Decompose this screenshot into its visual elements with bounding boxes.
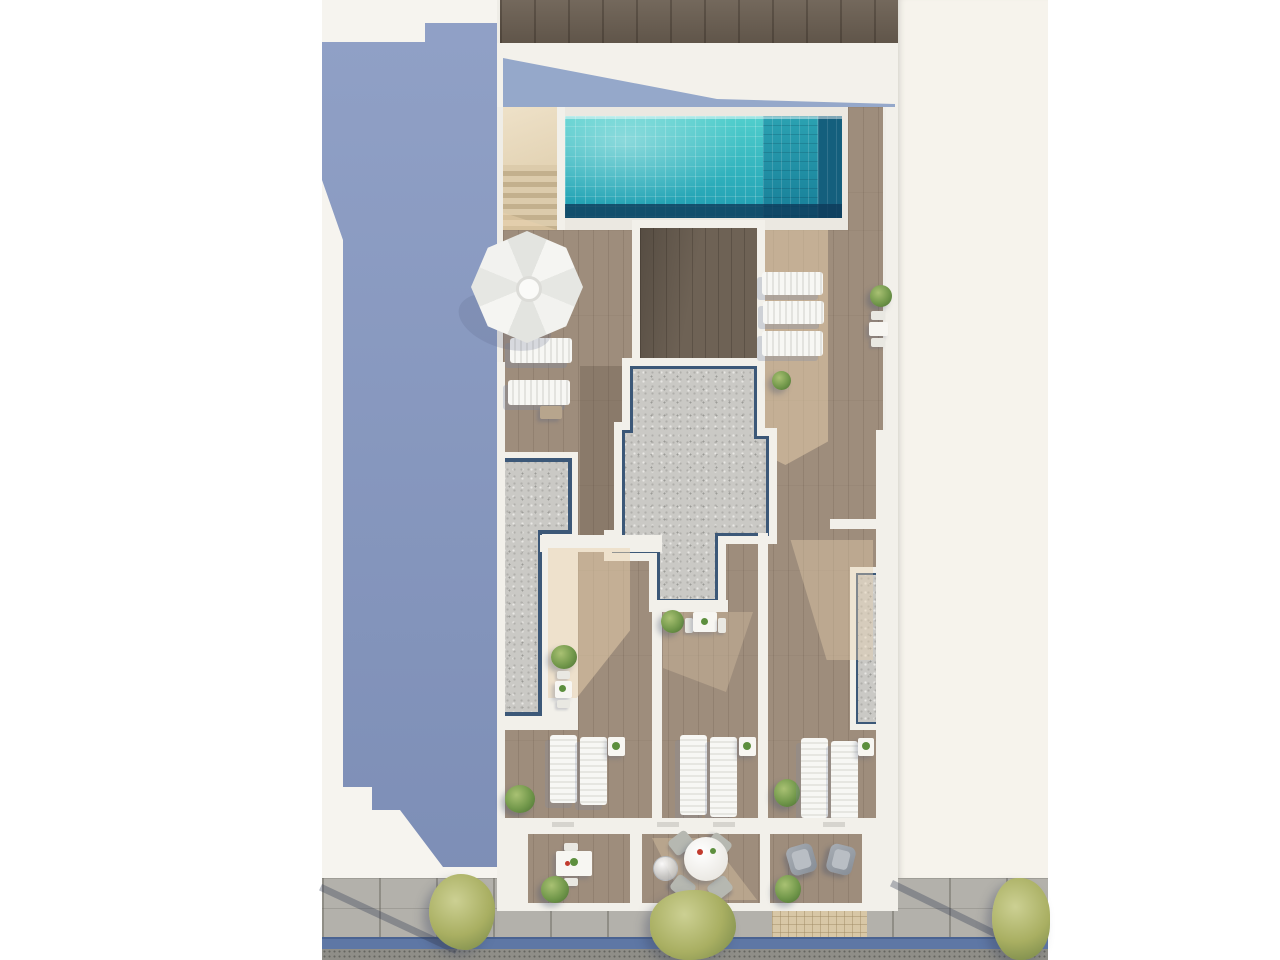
left-building-shading [322, 0, 498, 878]
sun-lounger [680, 735, 707, 815]
stair-pool-divider-wall [557, 107, 565, 230]
potted-plant [661, 610, 684, 633]
railing-mark [713, 822, 735, 827]
sun-lounger [508, 380, 570, 405]
sun-lounger [580, 737, 607, 805]
potted-plant [774, 779, 800, 807]
railing-mark [552, 822, 574, 827]
glass-sphere-decor [653, 856, 678, 881]
driveway-tan-pavers [772, 908, 867, 937]
pool-shadow-edge-right [818, 116, 842, 218]
potted-plant [505, 785, 535, 813]
potted-plant [775, 875, 801, 903]
left-adjacent-building [322, 0, 498, 878]
table-plant-dot [612, 742, 620, 750]
pool-side-deck [848, 107, 883, 230]
potted-plant [870, 285, 892, 307]
balcony-right-corner-wall [862, 818, 898, 911]
swimming-pool [565, 116, 842, 218]
side-table [540, 406, 562, 419]
stair-core-dark-floor [640, 228, 757, 362]
potted-plant [772, 371, 791, 390]
balcony-left-wall [503, 834, 528, 903]
balcony-divider-b-c [760, 834, 770, 903]
railing-mark [657, 822, 679, 827]
bistro-chair [871, 311, 885, 320]
right-parapet-lower [876, 430, 898, 820]
bistro-table [869, 322, 888, 336]
street-tree [992, 878, 1050, 960]
table-plant-dot [701, 618, 708, 625]
pool-waterline-highlight [565, 116, 842, 119]
sun-lounger [710, 737, 737, 817]
dining-chair [564, 843, 578, 851]
round-dining-table [684, 837, 728, 881]
bistro-chair [557, 700, 570, 708]
sun-lounger [550, 735, 577, 803]
railing-mark [823, 822, 845, 827]
stair-landing [503, 107, 557, 165]
table-item-dot [697, 849, 703, 855]
table-plant-dot [862, 742, 870, 750]
right-adjacent-plot [898, 0, 1048, 878]
table-plant-dot [743, 742, 751, 750]
bistro-chair [557, 671, 570, 679]
street-tree [429, 874, 495, 950]
sun-lounger [831, 741, 858, 820]
bistro-chair [718, 618, 726, 633]
armchair-seat [831, 848, 851, 870]
wall-room2-room3 [758, 533, 768, 822]
balcony-divider-a-b [630, 834, 642, 903]
sun-lounger [762, 272, 823, 295]
pool-shadow-edge-bottom [565, 204, 842, 218]
sun-lounger [762, 331, 823, 356]
parasol-hub [516, 276, 542, 302]
bistro-chair [871, 338, 885, 347]
main-rooftop [497, 0, 898, 911]
left-building-white-corner [322, 0, 425, 42]
table-item-dot [710, 848, 716, 854]
pool-water [565, 116, 763, 218]
sun-lounger [801, 738, 828, 818]
left-building-white-sliver [425, 0, 498, 23]
sun-lounger [763, 301, 824, 324]
wall-room1-room2 [652, 610, 662, 822]
table-plant-dot [570, 858, 578, 866]
street-tree [650, 890, 736, 960]
right-parapet-upper [886, 107, 898, 430]
table-item-dot [565, 861, 570, 866]
pool-submerged-bench [763, 116, 818, 218]
table-plant-dot [559, 685, 566, 692]
top-facade-wood-band [500, 0, 898, 43]
armchair-seat [791, 848, 813, 871]
potted-plant [541, 876, 569, 903]
potted-plant [551, 645, 577, 669]
bistro-chair [685, 618, 693, 633]
aerial-render-canvas [0, 0, 1280, 960]
